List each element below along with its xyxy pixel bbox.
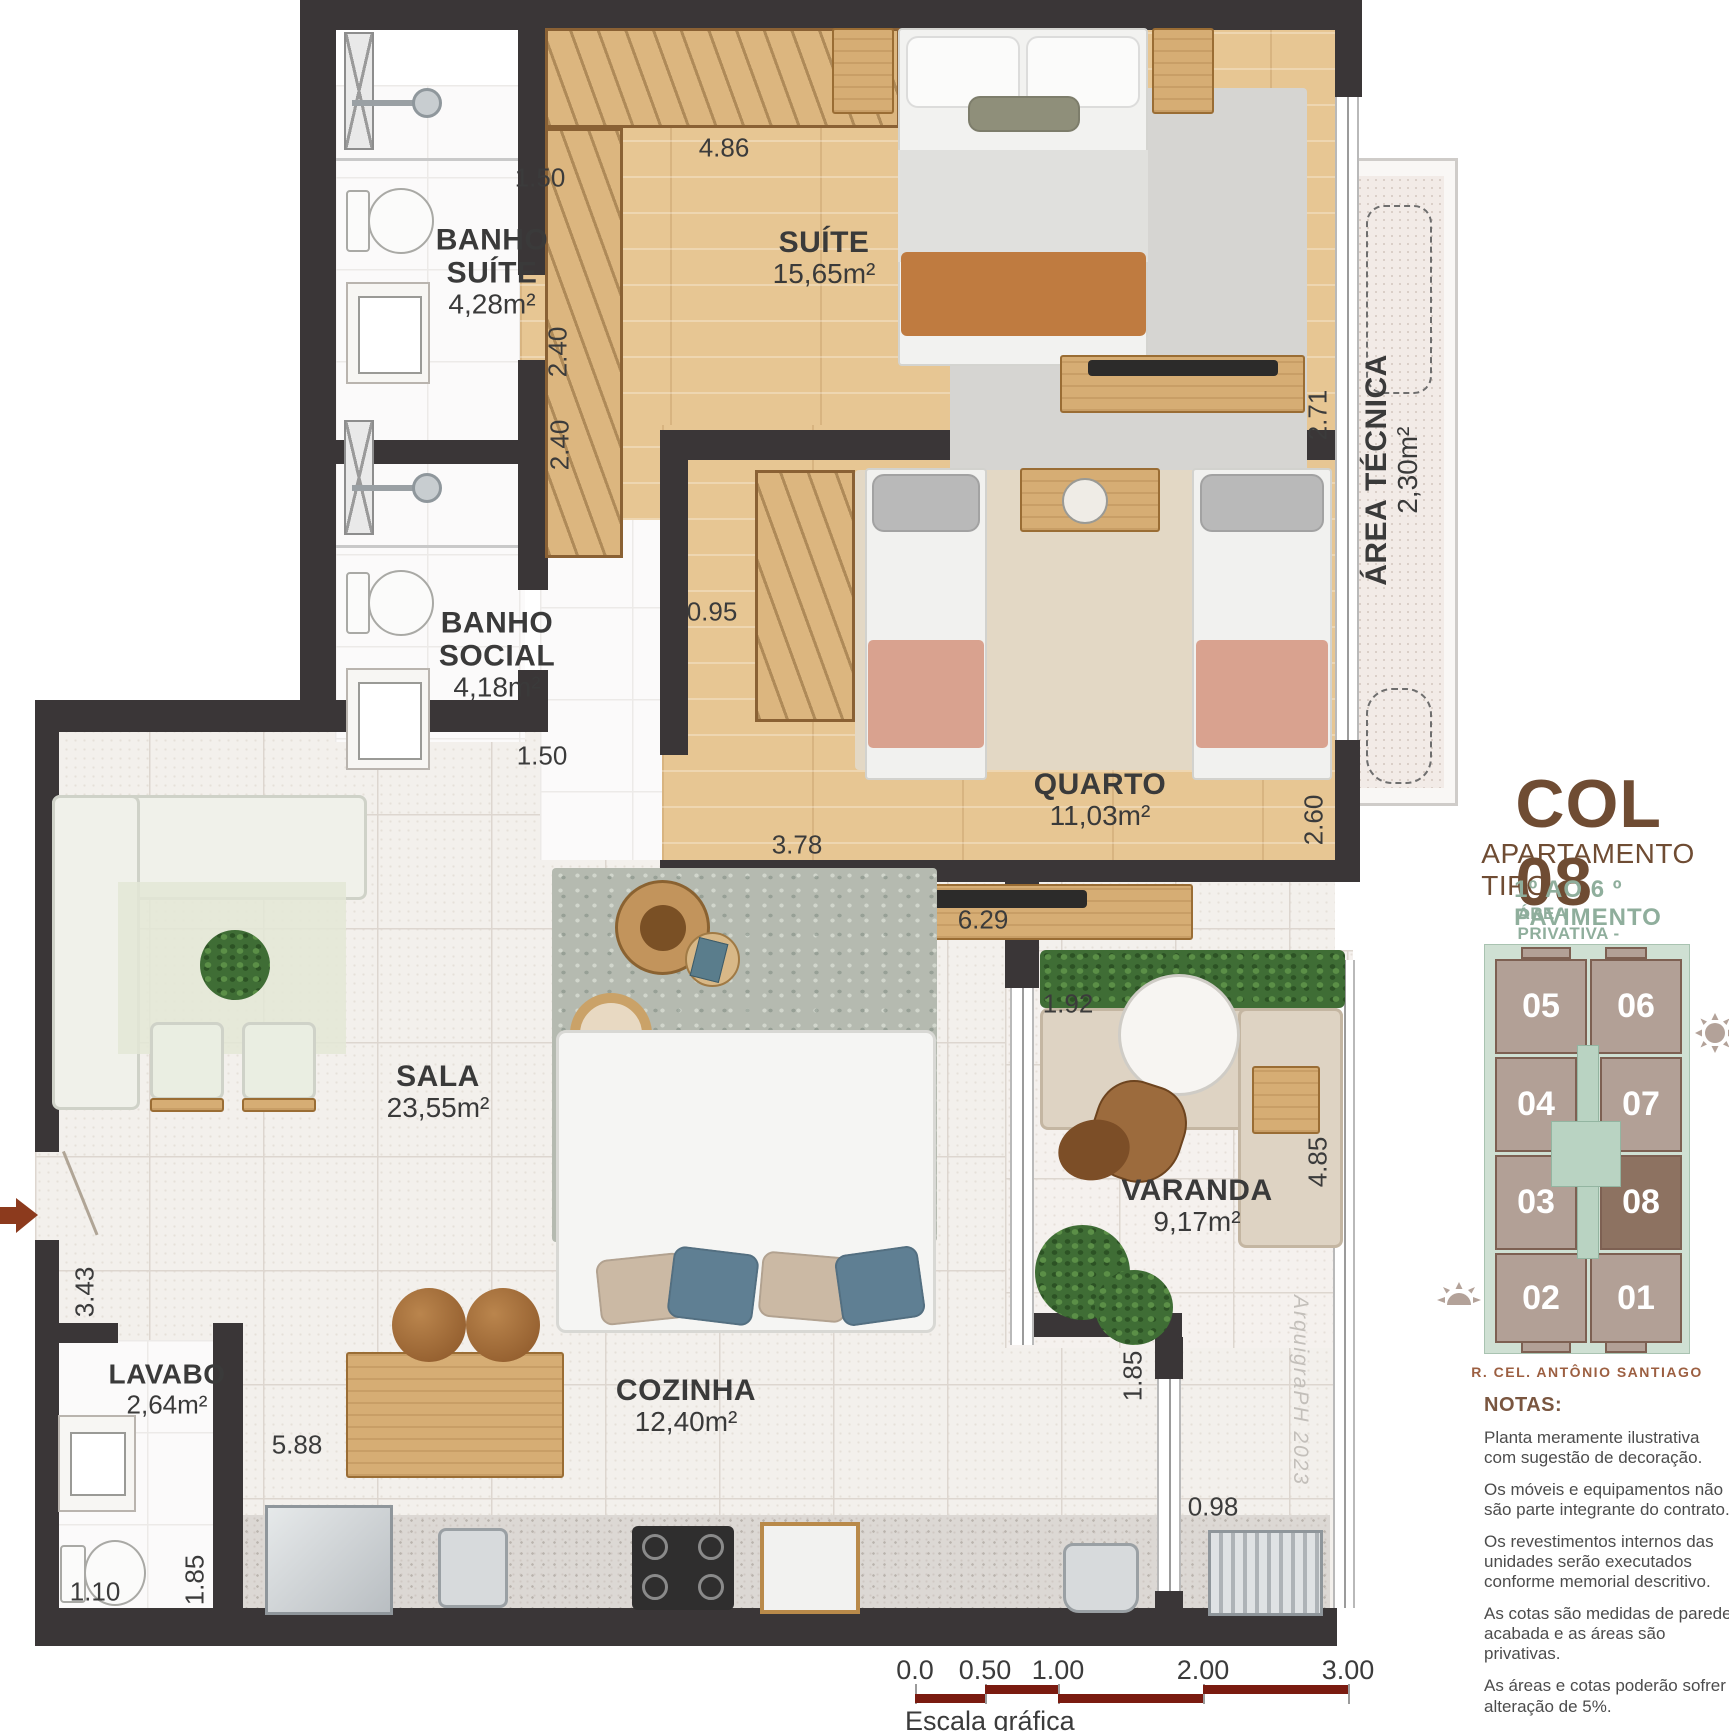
dimension: 3.43 [70,1267,101,1318]
note-item: Planta meramente ilustrativa com sugestã… [1484,1428,1729,1468]
service-door [1157,1379,1181,1591]
scale-segment [985,1685,1058,1694]
notes-list: Planta meramente ilustrativa com sugestã… [1484,1428,1729,1729]
wall [1155,1591,1183,1613]
keyplan-unit-01: 01 [1590,1253,1682,1343]
wall [1335,25,1362,97]
scale-label: 3.00 [1322,1655,1375,1686]
wall [55,1323,118,1343]
dimension: 2.40 [545,420,576,471]
illustrator-signature: ArquigraPH 2023 [1288,1295,1312,1495]
room-label-sala: SALA 23,55m² [387,1060,490,1124]
burner [698,1534,724,1560]
dimension: 5.88 [272,1430,323,1461]
lavabo-basin [70,1432,126,1496]
window [1335,97,1359,740]
shower-arm [352,485,418,491]
room-name: SALA [387,1060,490,1093]
burner [642,1574,668,1600]
note-item: As cotas são medidas de parede acabada e… [1484,1604,1729,1664]
wall [35,700,540,732]
room-area: 4,18m² [439,673,555,704]
room-label-quarto: QUARTO 11,03m² [1034,768,1166,832]
shaft [344,32,374,150]
wall [35,1608,1337,1646]
plant [1095,1270,1173,1345]
wall [300,30,336,732]
toilet-tank [346,190,370,252]
street-label: R. CEL. ANTÔNIO SANTIAGO [1471,1364,1702,1380]
keyplan-tab [1521,947,1571,959]
pillow [1200,474,1324,532]
accent-pillow [968,96,1080,132]
room-area: 11,03m² [1034,801,1166,832]
keyplan-tab [1605,1341,1647,1353]
scale-label: 0.0 [896,1655,934,1686]
laundry-tank [1063,1543,1139,1613]
washer-grille [1208,1530,1323,1616]
room-label-banho-social: BANHO SOCIAL 4,18m² [439,607,555,704]
keyplan-unit-05: 05 [1495,959,1587,1054]
room-name: BANHO [439,607,555,640]
room-area: 12,40m² [616,1407,756,1438]
bar-console [346,1352,564,1478]
tv [1088,360,1278,376]
keyplan-core [1551,1121,1621,1187]
scale-caption: Escala gráfica [905,1706,1075,1731]
room-label-cozinha: COZINHA 12,40m² [616,1374,756,1438]
sunrise-icon [1436,1280,1482,1306]
scale-segment [1058,1694,1203,1703]
twin-blanket [868,640,984,748]
keyplan: 05 06 04 07 03 08 02 01 [1484,944,1690,1354]
round-table [1118,974,1240,1096]
keyplan-unit-06: 06 [1590,959,1682,1054]
room-name: SOCIAL [439,640,555,673]
scale-label: 2.00 [1177,1655,1230,1686]
dimension: 1.85 [180,1555,211,1606]
floor-hall [540,515,662,860]
sun-icon [1694,1012,1729,1054]
burner [642,1534,668,1560]
pouf [466,1288,540,1362]
dimension: 1.85 [1118,1351,1149,1402]
side-table [1252,1066,1320,1134]
dimension: 1.92 [1043,989,1094,1020]
wall [660,460,688,755]
room-area: 9,17m² [1121,1207,1272,1238]
ottoman [242,1022,316,1100]
dimension: 1.50 [515,163,566,194]
room-area: 15,65m² [773,259,876,290]
wall [518,360,548,590]
entry-arrow-icon [0,1198,40,1234]
room-area: 2,64m² [108,1390,225,1419]
room-label-lavabo: LAVABO 2,64m² [108,1359,225,1418]
room-name: ÁREA TÉCNICA [1360,354,1393,586]
nightstand [832,28,894,114]
dimension: 2.71 [1303,390,1334,441]
wall [1335,740,1360,882]
dimension: 6.29 [958,905,1009,936]
shower-arm [352,100,418,106]
pillow [872,474,980,532]
dimension: 2.40 [543,327,574,378]
scale-label: 1.00 [1032,1655,1085,1686]
toilet-bowl [368,188,434,254]
room-label-varanda: VARANDA 9,17m² [1121,1174,1272,1238]
window [1333,1345,1355,1608]
room-name: SUÍTE [436,257,549,290]
note-item: Os móveis e equipamentos não são parte i… [1484,1480,1729,1520]
shower-head [412,88,442,118]
fridge [265,1505,393,1615]
dimension: 4.86 [699,133,750,164]
bath-basin [358,296,422,374]
plant [200,930,270,1000]
counter-board [760,1522,860,1614]
note-item: As áreas e cotas poderão sofrer alteraçã… [1484,1676,1729,1716]
dimension: 1.50 [517,741,568,772]
room-name: BANHO [436,224,549,257]
quarto-wardrobe [755,470,855,722]
room-name: VARANDA [1121,1174,1272,1207]
wall [35,1240,59,1612]
shower-head [412,473,442,503]
room-name: LAVABO [108,1359,225,1390]
toilet-tank [346,572,370,634]
suite-blanket [898,150,1148,262]
shaft [344,420,374,535]
room-area: 2,30m² [1393,354,1424,586]
scale-label: 0.50 [959,1655,1012,1686]
keyplan-tab [1605,947,1647,959]
burner [698,1574,724,1600]
wall [1155,1337,1183,1379]
wall [300,0,1362,30]
pouf [392,1288,466,1362]
suite-throw [901,252,1146,336]
dimension: 4.85 [1303,1137,1334,1188]
dimension: 3.78 [772,830,823,861]
twin-blanket [1196,640,1328,748]
ottoman-base [150,1098,224,1112]
shower-glass [336,158,518,161]
fan [1062,478,1108,524]
ottoman [150,1022,224,1100]
scale-tick [1348,1684,1350,1704]
toilet-bowl [368,570,434,636]
note-item: Os revestimentos internos das unidades s… [1484,1532,1729,1592]
room-label-area-tecnica: ÁREA TÉCNICA 2,30m² [1360,354,1424,586]
dimension: 1.10 [70,1577,121,1608]
keyplan-unit-02: 02 [1495,1253,1587,1343]
dimension: 0.95 [687,597,738,628]
room-name: QUARTO [1034,768,1166,801]
room-label-banho-suite: BANHO SUÍTE 4,28m² [436,224,549,321]
ac-condenser-outline [1366,688,1432,784]
keyplan-tab [1521,1341,1571,1353]
pillow [666,1245,760,1327]
shower-glass [336,545,518,548]
dimension: 0.98 [1188,1492,1239,1523]
scale-segment [1203,1685,1348,1694]
bath-basin [358,682,422,760]
pillow [833,1245,926,1328]
kitchen-sink [438,1528,508,1608]
notes-title: NOTAS: [1484,1394,1562,1417]
coffee-table-tray [640,905,686,951]
room-label-suite: SUÍTE 15,65m² [773,226,876,290]
room-name: SUÍTE [773,226,876,259]
floorplan-page: BANHO SUÍTE 4,28m² BANHO SOCIAL 4,18m² S… [0,0,1729,1731]
dimension: 2.60 [1299,795,1330,846]
room-area: 4,28m² [436,290,549,321]
sliding-door-varanda [1010,988,1034,1345]
room-name: COZINHA [616,1374,756,1407]
nightstand [1152,28,1214,114]
room-area: 23,55m² [387,1093,490,1124]
scale-segment [915,1694,985,1703]
ottoman-base [242,1098,316,1112]
